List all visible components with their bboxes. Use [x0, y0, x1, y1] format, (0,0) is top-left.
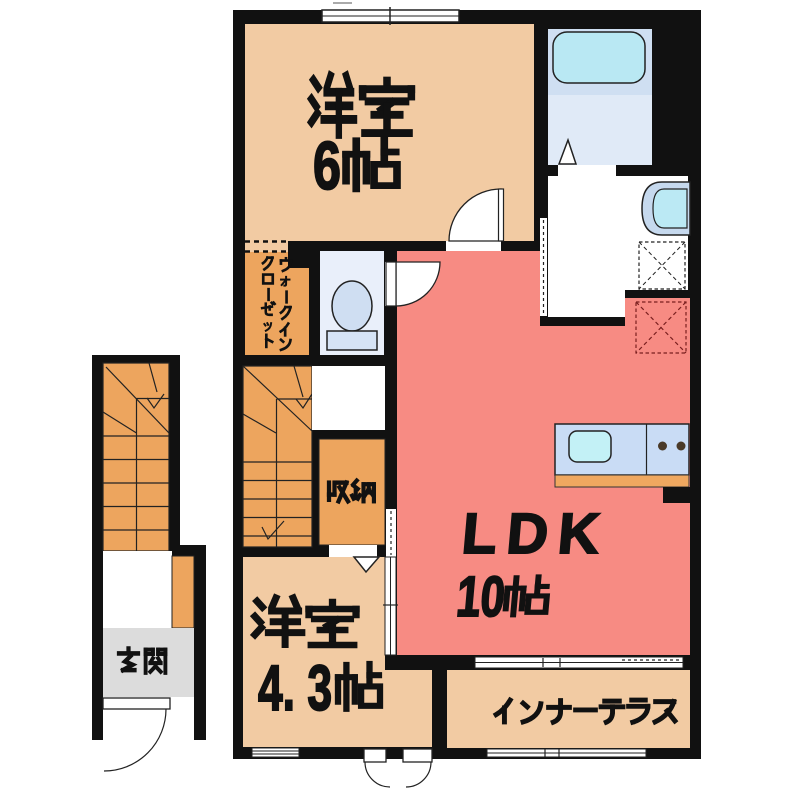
svg-text:LDK: LDK: [459, 502, 612, 566]
svg-text:6: 6: [313, 128, 341, 204]
svg-text:4. 3: 4. 3: [258, 652, 332, 724]
svg-text:10: 10: [454, 565, 508, 629]
